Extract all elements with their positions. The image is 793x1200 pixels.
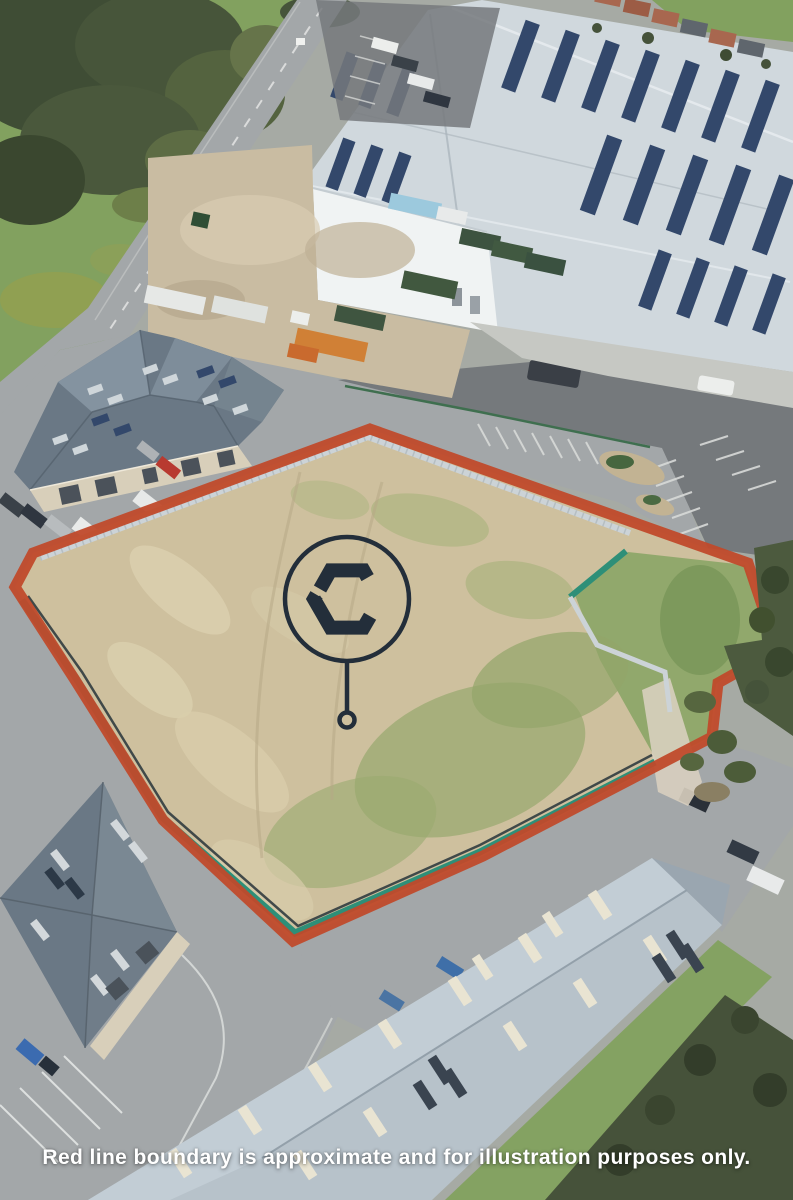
- disclaimer-caption: Red line boundary is approximate and for…: [0, 1146, 793, 1170]
- aerial-scene: [0, 0, 793, 1200]
- road-sign: [296, 38, 305, 45]
- white-van: [746, 866, 784, 895]
- aerial-site-photo: Red line boundary is approximate and for…: [0, 0, 793, 1200]
- car-park-top: [296, 0, 500, 128]
